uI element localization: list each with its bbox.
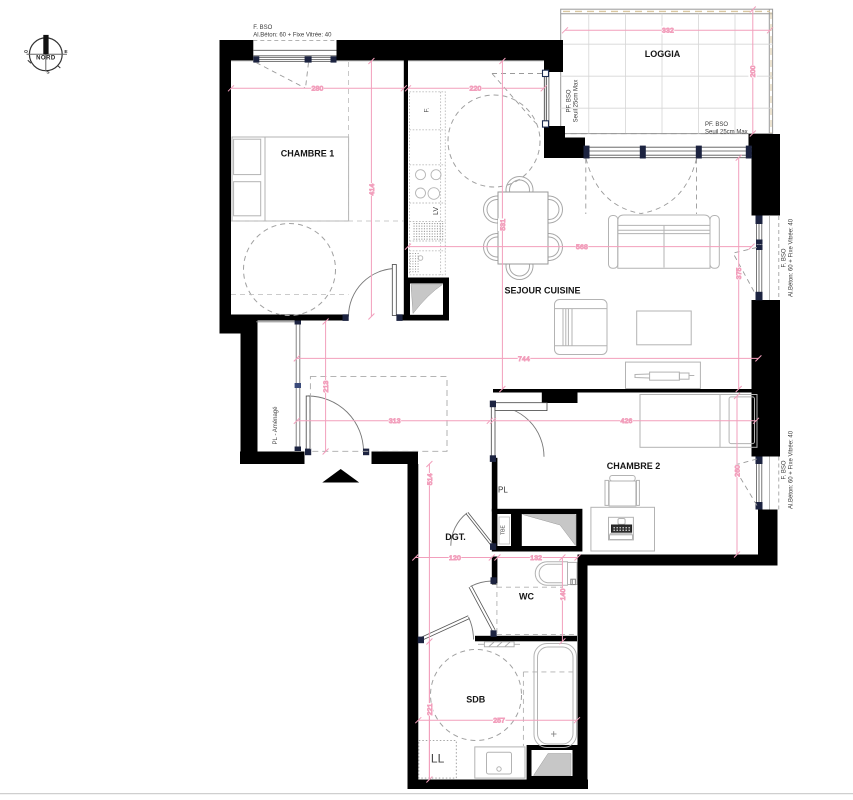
svg-text:375: 375 — [736, 267, 743, 279]
svg-text:TBE: TBE — [501, 524, 507, 534]
svg-text:PF. BSO: PF. BSO — [705, 122, 728, 128]
svg-text:221: 221 — [427, 703, 434, 715]
svg-text:120: 120 — [449, 555, 461, 562]
svg-text:257: 257 — [493, 718, 505, 725]
svg-text:PL: PL — [498, 486, 508, 495]
svg-text:PF. BSO: PF. BSO — [567, 89, 573, 112]
svg-text:F. BSO: F. BSO — [782, 248, 788, 267]
svg-text:NORD: NORD — [36, 55, 56, 61]
svg-text:426: 426 — [621, 418, 633, 425]
svg-text:514: 514 — [427, 473, 434, 485]
svg-text:DGT.: DGT. — [445, 532, 466, 542]
svg-text:213: 213 — [323, 381, 330, 393]
svg-text:744: 744 — [518, 356, 530, 363]
svg-text:Al.Béton: 60 + Fixe Vitrée: 40: Al.Béton: 60 + Fixe Vitrée: 40 — [253, 33, 332, 39]
svg-text:260: 260 — [734, 465, 741, 477]
svg-text:WC: WC — [519, 592, 534, 602]
svg-text:332: 332 — [662, 28, 674, 35]
svg-text:Al.Béton: 60 + Fixe Vitrée: 40: Al.Béton: 60 + Fixe Vitrée: 40 — [789, 218, 795, 297]
svg-text:LOGGIA: LOGGIA — [645, 49, 681, 59]
svg-text:O: O — [24, 49, 28, 55]
svg-text:Seuil 25cm Max: Seuil 25cm Max — [574, 80, 580, 123]
svg-text:313: 313 — [389, 418, 401, 425]
svg-text:Seuil 25cm Max: Seuil 25cm Max — [705, 129, 748, 135]
svg-text:140: 140 — [560, 588, 567, 600]
svg-text:132: 132 — [530, 555, 542, 562]
svg-text:LV: LV — [433, 207, 440, 215]
svg-text:Al.Béton: 60 + Fixe Vitrée: 40: Al.Béton: 60 + Fixe Vitrée: 40 — [789, 430, 795, 509]
svg-text:280: 280 — [312, 86, 324, 93]
svg-text:PL - Aménagé: PL - Aménagé — [273, 406, 279, 444]
svg-text:200: 200 — [750, 65, 757, 77]
svg-text:568: 568 — [576, 244, 588, 251]
svg-text:SDB: SDB — [466, 695, 486, 705]
svg-text:LL: LL — [431, 752, 445, 766]
svg-text:F.: F. — [424, 107, 431, 112]
svg-text:CHAMBRE 1: CHAMBRE 1 — [281, 149, 335, 159]
svg-text:220: 220 — [470, 86, 482, 93]
svg-text:CHAMBRE 2: CHAMBRE 2 — [607, 461, 661, 471]
svg-text:531: 531 — [500, 219, 507, 231]
svg-text:414: 414 — [369, 184, 376, 196]
svg-text:SEJOUR CUISINE: SEJOUR CUISINE — [504, 285, 580, 295]
svg-text:F. BSO: F. BSO — [782, 460, 788, 479]
svg-text:F. BSO: F. BSO — [253, 25, 272, 31]
